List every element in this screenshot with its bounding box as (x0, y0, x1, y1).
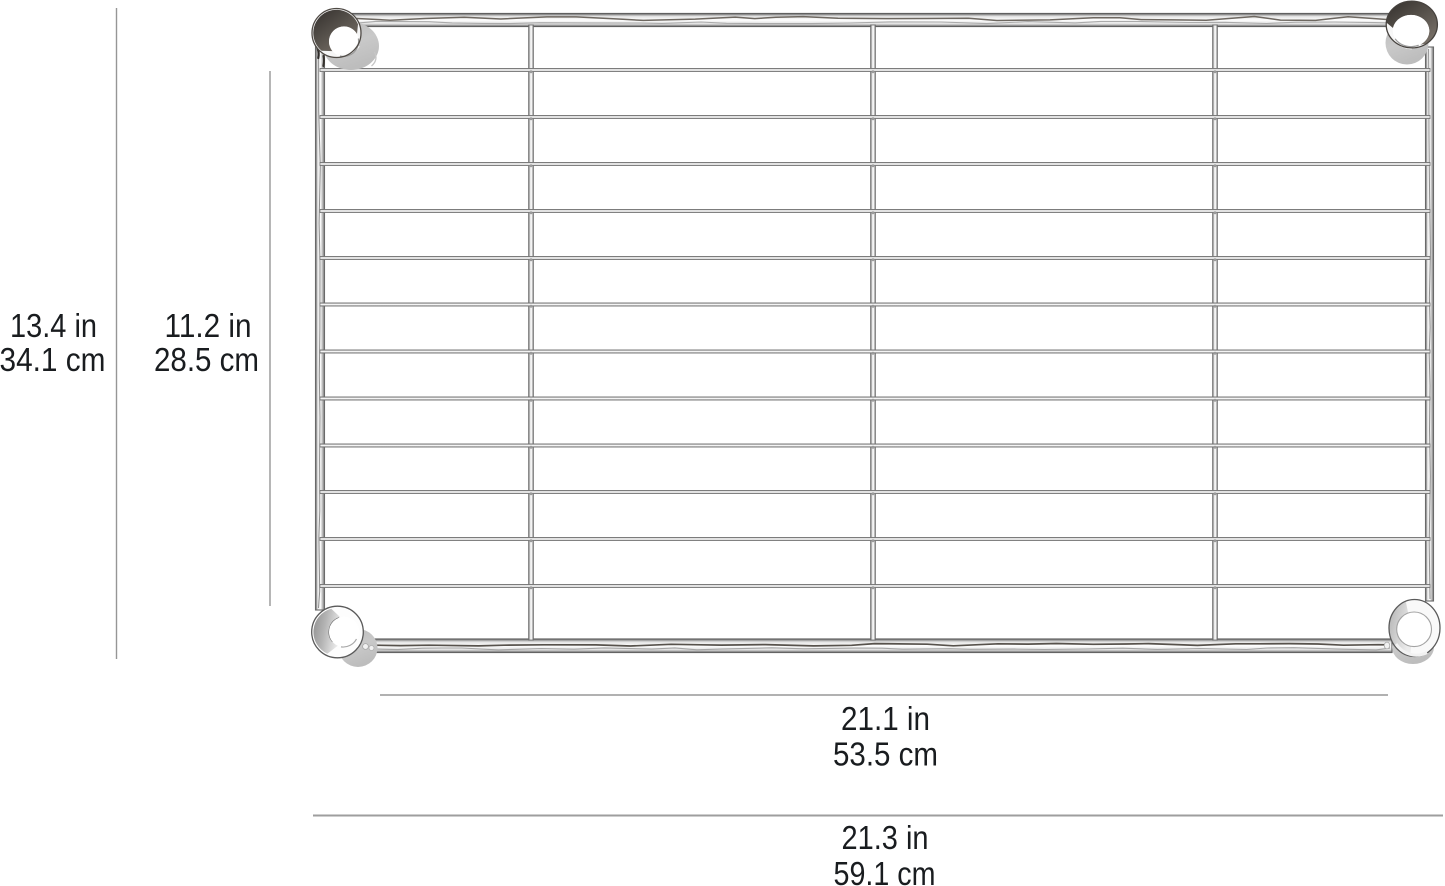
svg-text:59.1 cm: 59.1 cm (834, 855, 936, 886)
svg-text:21.1 in: 21.1 in (841, 700, 930, 737)
svg-text:21.3 in: 21.3 in (842, 819, 929, 856)
svg-text:28.5 cm: 28.5 cm (154, 341, 259, 378)
svg-text:11.2 in: 11.2 in (165, 307, 252, 344)
svg-text:34.1 cm: 34.1 cm (0, 341, 106, 378)
svg-text:13.4 in: 13.4 in (10, 307, 97, 344)
svg-text:53.5 cm: 53.5 cm (833, 736, 938, 773)
